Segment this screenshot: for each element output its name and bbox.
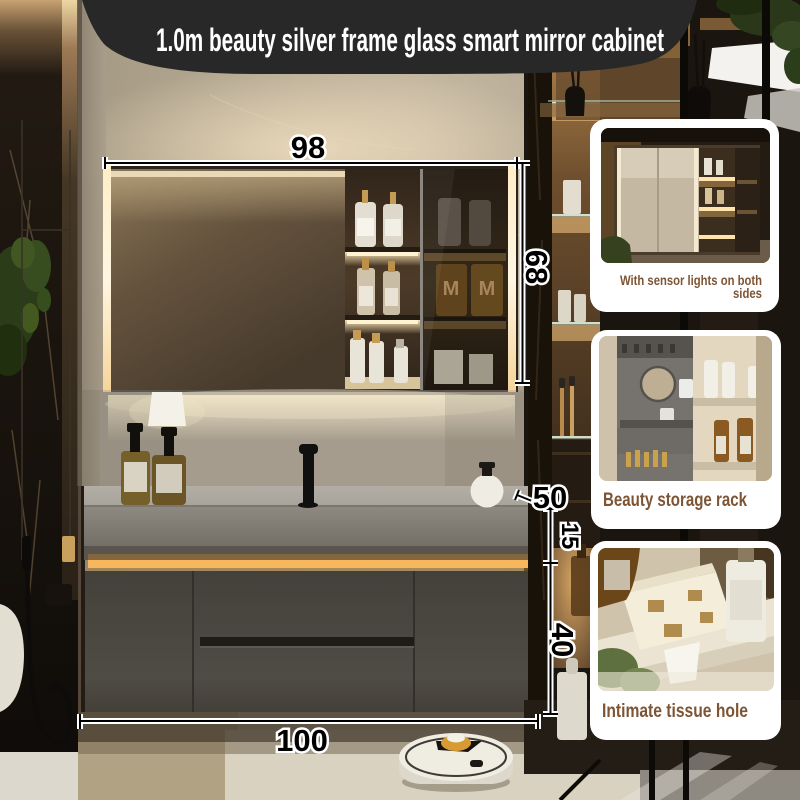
svg-text:M: M (479, 278, 496, 300)
svg-text:15: 15 (556, 523, 583, 550)
svg-text:100: 100 (276, 723, 328, 758)
svg-text:1.0m beauty silver frame glass: 1.0m beauty silver frame glass smart mir… (156, 22, 664, 58)
svg-text:40: 40 (545, 623, 580, 657)
svg-text:50: 50 (533, 480, 567, 515)
svg-text:M: M (443, 278, 460, 300)
svg-text:98: 98 (291, 130, 325, 165)
svg-text:sides: sides (733, 285, 762, 301)
svg-text:Beauty storage rack: Beauty storage rack (603, 490, 747, 511)
svg-text:Intimate tissue hole: Intimate tissue hole (602, 701, 748, 722)
svg-text:68: 68 (519, 250, 554, 284)
